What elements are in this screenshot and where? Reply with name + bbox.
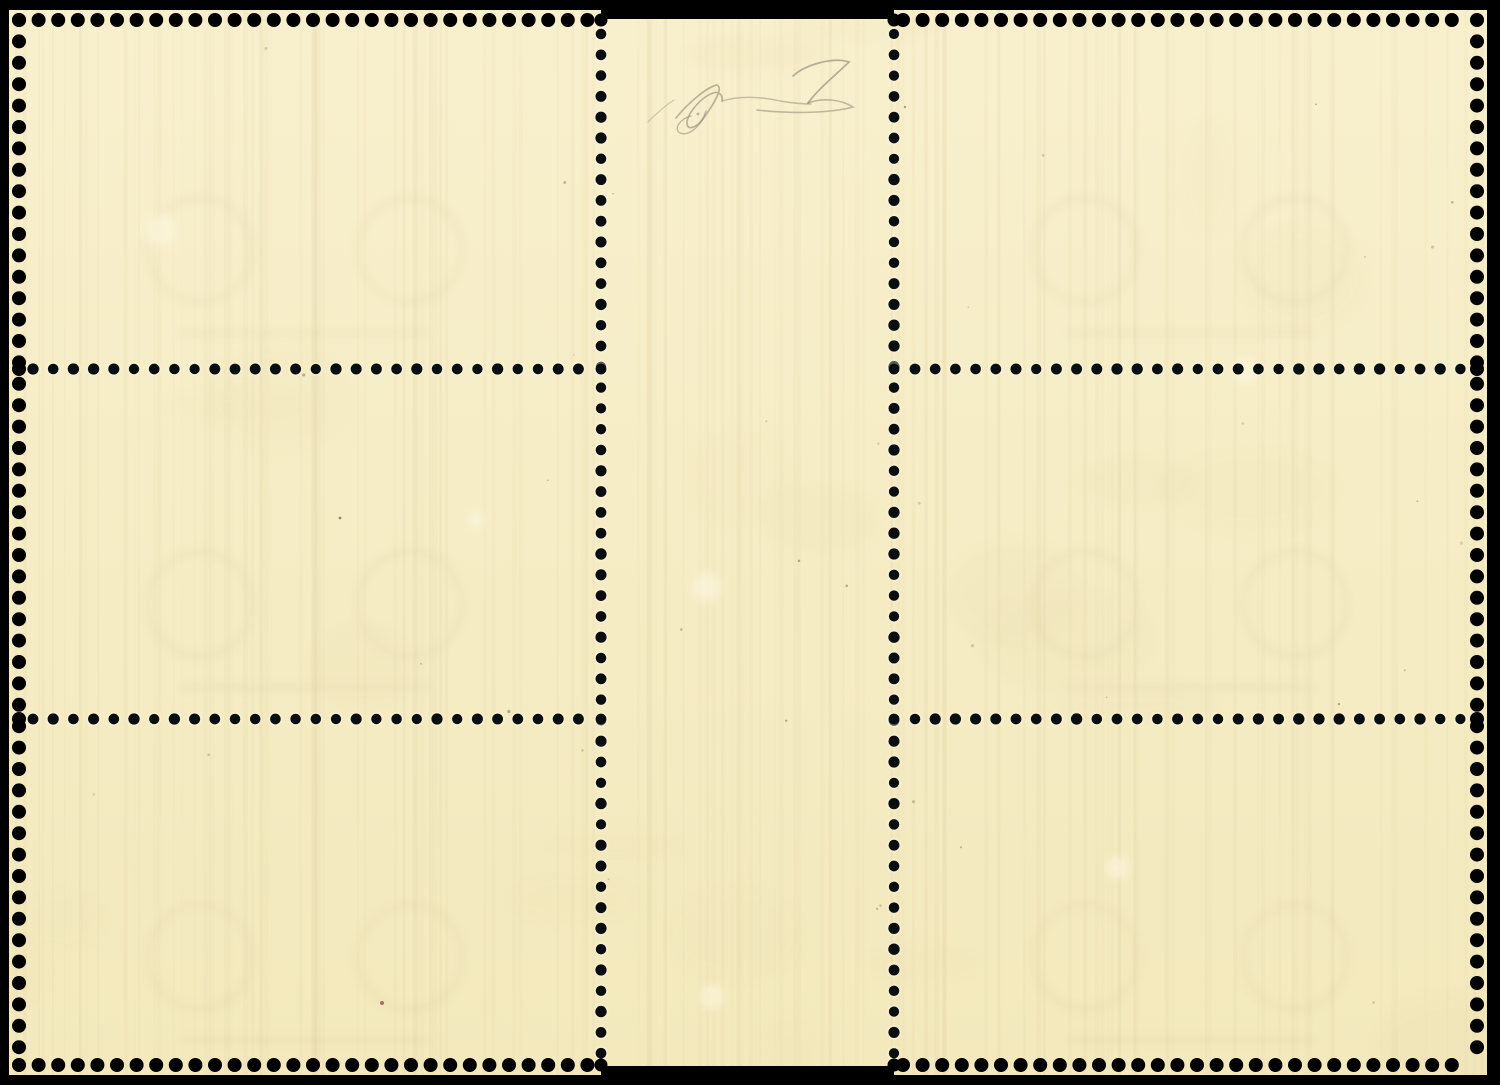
photo-canvas — [0, 0, 1500, 1085]
stamp-photo-svg — [0, 0, 1500, 1085]
